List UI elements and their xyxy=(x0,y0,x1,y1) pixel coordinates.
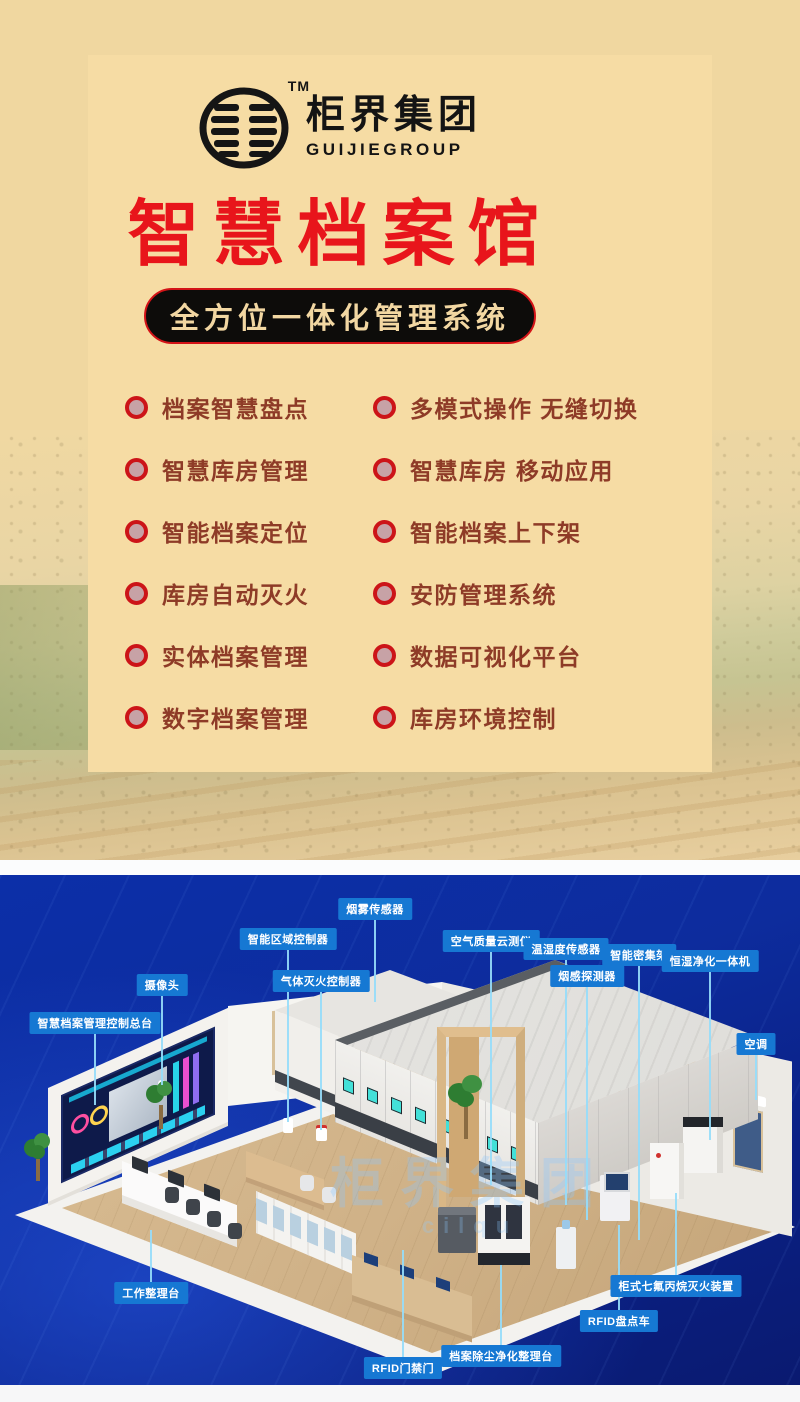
humidity-purifier-cabinet xyxy=(683,1117,723,1173)
callout-compact-shelving: 智能密集架 xyxy=(602,944,676,966)
feature-item: 数字档案管理 xyxy=(125,698,373,736)
office-chair xyxy=(165,1187,179,1203)
copier-machine xyxy=(438,1207,476,1253)
bullet-icon xyxy=(125,706,148,729)
office-chair xyxy=(322,1187,336,1203)
bullet-icon xyxy=(125,458,148,481)
camera-device xyxy=(158,1080,165,1087)
feature-item: 安防管理系统 xyxy=(373,574,685,612)
bullet-icon xyxy=(373,644,396,667)
feature-item: 智能档案上下架 xyxy=(373,512,685,550)
office-chair xyxy=(186,1199,200,1215)
feature-item: 实体档案管理 xyxy=(125,636,373,674)
open-shelving-front xyxy=(275,1010,355,1123)
callout-line xyxy=(161,992,163,1085)
water-dispenser xyxy=(556,1227,576,1269)
room-platform xyxy=(0,875,800,1385)
compact-shelving-rail xyxy=(0,875,800,1385)
meeting-table xyxy=(246,1151,324,1210)
bullet-icon xyxy=(373,396,396,419)
bullet-icon xyxy=(373,520,396,543)
bullet-icon xyxy=(125,396,148,419)
office-chair xyxy=(228,1223,242,1239)
callout-air-conditioner: 空调 xyxy=(737,1033,776,1055)
bullet-icon xyxy=(373,458,396,481)
isometric-room-illustration: 柜界集团 cilqu 烟雾传感器 智能区域控制器 气体灭火控制器 摄像头 智慧档… xyxy=(0,875,800,1385)
page-footer xyxy=(0,1385,800,1402)
callout-line xyxy=(675,1193,677,1275)
watermark: 柜界集团 cilqu xyxy=(300,1157,640,1237)
brand-logo: TM 柜界集团 GUIJIEGROUP xyxy=(90,86,590,170)
zone-controller-device xyxy=(283,1118,293,1133)
open-shelving-top xyxy=(0,875,800,1385)
feature-item: 智慧库房管理 xyxy=(125,450,373,488)
feature-item: 数据可视化平台 xyxy=(373,636,685,674)
blue-door xyxy=(733,1105,763,1173)
fm200-extinguisher-cabinet xyxy=(650,1143,684,1199)
callout-smoke-sensor: 烟雾传感器 xyxy=(338,898,412,920)
callout-fm200-extinguisher: 柜式七氟丙烷灭火装置 xyxy=(611,1275,742,1297)
page-title: 智慧档案馆 xyxy=(90,196,590,275)
callout-line xyxy=(320,988,322,1130)
brand-name-cn: 柜界集团 xyxy=(306,96,482,137)
callout-smoke-detector: 烟感探测器 xyxy=(550,965,624,987)
logo-text: 柜界集团 GUIJIEGROUP xyxy=(306,96,482,160)
callout-gas-fire-controller: 气体灭火控制器 xyxy=(273,970,370,992)
logo-cabinet-icon: TM xyxy=(198,86,290,170)
callout-line xyxy=(94,1030,96,1105)
office-desk xyxy=(122,1161,237,1247)
callout-line xyxy=(374,915,376,1002)
open-shelving-archive-boxes xyxy=(355,1000,470,1123)
top-section: TM 柜界集团 GUIJIEGROUP 智慧档案馆 全方位一体化管理系统 档案智… xyxy=(0,0,800,860)
archive-right-wall xyxy=(442,982,792,1237)
callout-humidity-purifier: 恒湿净化一体机 xyxy=(662,950,759,972)
callout-line xyxy=(638,962,640,1240)
front-work-desks xyxy=(352,1255,472,1342)
callout-camera: 摄像头 xyxy=(137,974,188,996)
bullet-icon xyxy=(373,582,396,605)
section-divider xyxy=(0,860,800,875)
subtitle-pill: 全方位一体化管理系统 xyxy=(144,288,536,344)
callout-line xyxy=(565,956,567,1205)
office-chair xyxy=(207,1211,221,1227)
callout-line xyxy=(287,946,289,1122)
callout-line xyxy=(709,968,711,1140)
callout-line xyxy=(490,948,492,1185)
callout-rfid-gate: RFID门禁门 xyxy=(364,1357,442,1379)
rfid-cart-device xyxy=(600,1175,630,1221)
bullet-icon xyxy=(125,520,148,543)
callout-work-table: 工作整理台 xyxy=(114,1282,188,1304)
feature-item: 档案智慧盘点 xyxy=(125,388,373,426)
compact-shelving-roof xyxy=(0,875,800,1385)
callout-dust-cleaning-table: 档案除尘净化整理台 xyxy=(441,1345,561,1367)
callout-line xyxy=(618,1225,620,1310)
callout-rfid-cart: RFID盘点车 xyxy=(580,1310,658,1332)
dust-purification-cabinet xyxy=(478,1197,530,1265)
callout-line xyxy=(150,1230,152,1282)
bullet-icon xyxy=(373,706,396,729)
feature-item: 多模式操作 无缝切换 xyxy=(373,388,685,426)
callout-control-console: 智慧档案管理控制总台 xyxy=(30,1012,161,1034)
air-conditioner-device xyxy=(750,1094,766,1108)
feature-item: 库房环境控制 xyxy=(373,698,685,736)
wooden-door-frame xyxy=(437,1027,525,1212)
feature-item: 智能档案定位 xyxy=(125,512,373,550)
callout-line xyxy=(500,1265,502,1345)
trademark-symbol: TM xyxy=(288,78,310,94)
control-room-wall xyxy=(48,1008,228,1206)
room-wood-floor xyxy=(0,875,800,1385)
feature-item: 库房自动灭火 xyxy=(125,574,373,612)
callout-air-quality-meter: 空气质量云测仪 xyxy=(443,930,540,952)
poster-page: TM 柜界集团 GUIJIEGROUP 智慧档案馆 全方位一体化管理系统 档案智… xyxy=(0,0,800,1402)
callout-line xyxy=(755,1051,757,1100)
feature-item: 智慧库房 移动应用 xyxy=(373,450,685,488)
callout-temp-humidity-sensor: 温湿度传感器 xyxy=(524,938,609,960)
subtitle-wrap: 全方位一体化管理系统 xyxy=(90,288,590,344)
archive-back-left-wall xyxy=(228,982,442,1106)
compact-shelving-side xyxy=(538,1037,758,1205)
callout-zone-controller: 智能区域控制器 xyxy=(240,928,337,950)
feature-list: 档案智慧盘点 多模式操作 无缝切换 智慧库房管理 智慧库房 移动应用 智能档案定… xyxy=(125,388,685,736)
sand-streak-texture xyxy=(0,760,800,860)
compact-shelving-front xyxy=(335,1040,538,1205)
bullet-icon xyxy=(125,644,148,667)
callout-line xyxy=(402,1250,404,1357)
dashboard-display-wall xyxy=(61,1027,215,1184)
locker-row xyxy=(256,1191,356,1275)
brand-name-en: GUIJIEGROUP xyxy=(306,140,464,160)
office-chair xyxy=(300,1175,314,1191)
gas-fire-controller-device xyxy=(316,1125,327,1141)
wall-window xyxy=(686,1059,722,1137)
bullet-icon xyxy=(125,582,148,605)
callout-line xyxy=(586,983,588,1220)
